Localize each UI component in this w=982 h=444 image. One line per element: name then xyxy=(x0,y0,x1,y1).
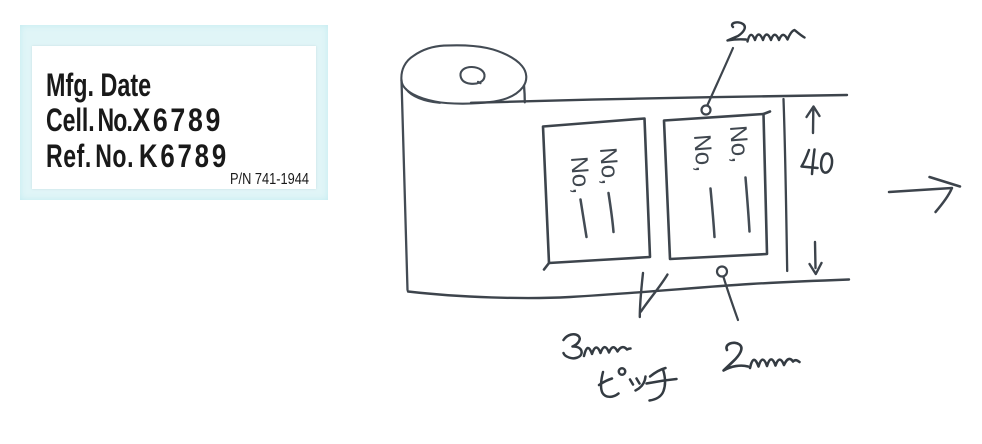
svg-text:No,: No, xyxy=(688,134,718,173)
svg-text:No,: No, xyxy=(565,156,595,195)
svg-text:No,: No, xyxy=(724,125,754,164)
svg-text:No,: No, xyxy=(594,147,624,186)
